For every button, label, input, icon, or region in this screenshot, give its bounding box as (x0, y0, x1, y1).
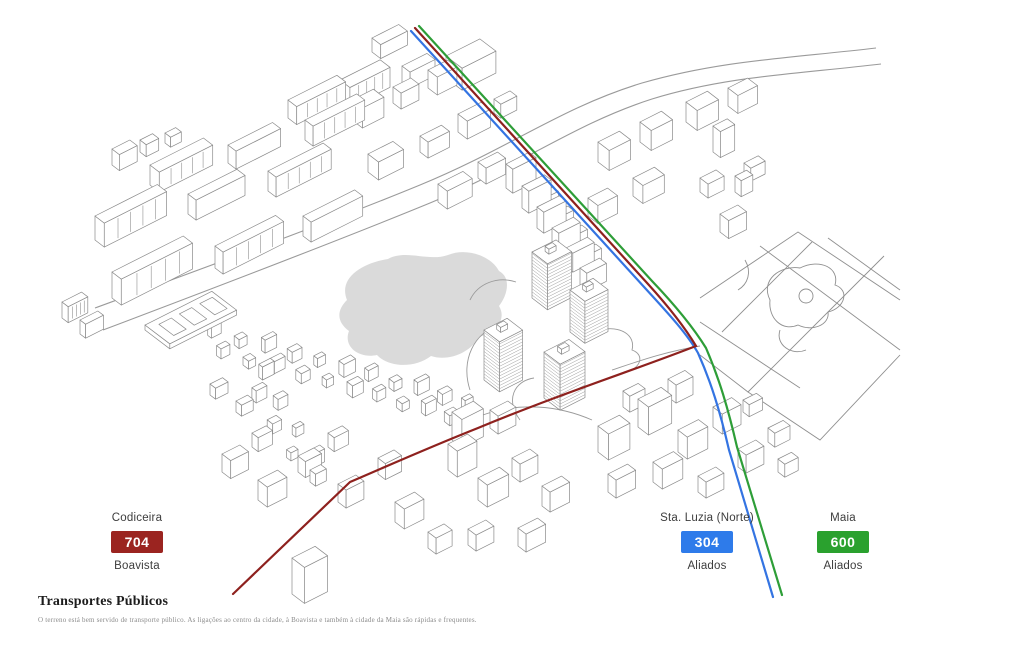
page-title: Transportes Públicos (38, 594, 978, 610)
pond-shape (339, 252, 507, 365)
route-badge-600: 600 (817, 531, 869, 553)
destination-label: Aliados (753, 560, 933, 572)
legend-600: Maia 600 Aliados (753, 512, 933, 572)
legend-704: Codiceira 704 Boavista (47, 512, 227, 572)
footer: Transportes Públicos O terreno está bem … (38, 594, 978, 624)
route-badge-304: 304 (681, 531, 733, 553)
page: Codiceira 704 Boavista Sta. Luzia (Norte… (0, 0, 1024, 666)
origin-label: Maia (753, 512, 933, 524)
origin-label: Codiceira (47, 512, 227, 524)
destination-label: Boavista (47, 560, 227, 572)
page-description: O terreno está bem servido de transporte… (38, 616, 978, 624)
route-badge-704: 704 (111, 531, 163, 553)
